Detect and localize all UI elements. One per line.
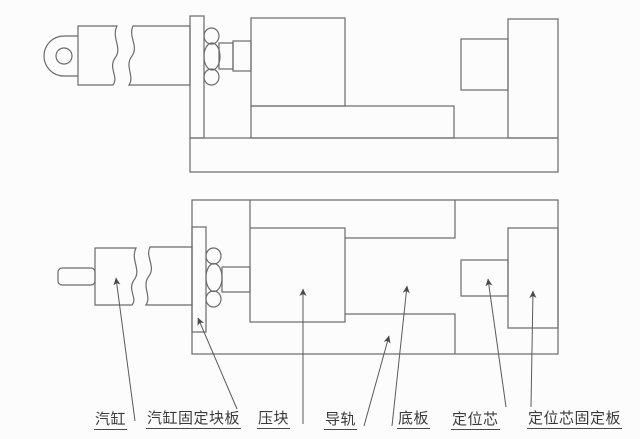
rod-nut-top-side — [204, 28, 219, 44]
press-block-plan — [250, 228, 345, 322]
base-plate-plan — [192, 200, 558, 354]
rod-nut-bottom-plan — [206, 291, 221, 307]
leader-base-plate — [392, 286, 407, 426]
rod-nut-mid-side — [204, 43, 220, 70]
assembly-drawing-canvas: 汽缸 汽缸固定块板 压块 导轨 底板 定位芯 定位芯固定板 — [0, 0, 640, 439]
cylinder-body-side — [78, 26, 118, 85]
cylinder-fixing-plate-side — [190, 16, 204, 138]
label-cylinder-fixing-block-plate: 汽缸固定块板 — [146, 410, 241, 429]
plan-view — [58, 200, 558, 354]
base-plate-side — [190, 138, 558, 172]
locating-core-fixing-plate-side — [508, 19, 558, 138]
label-press-block: 压块 — [257, 410, 290, 429]
rod-coupler-side — [233, 41, 251, 71]
piston-rod-side — [219, 43, 233, 69]
leader-lines — [116, 278, 533, 426]
leader-locating-core — [488, 279, 506, 407]
cylinder-fixing-plate-plan — [192, 227, 206, 332]
clevis-hole-side — [56, 48, 72, 64]
label-locating-core-fixing-plate: 定位芯固定板 — [527, 410, 622, 429]
cylinder-barrel-plan — [146, 247, 192, 305]
side-view — [44, 16, 558, 172]
label-locating-core: 定位芯 — [451, 411, 500, 430]
leader-cylinder — [116, 278, 135, 421]
cylinder-body-plan — [95, 248, 137, 305]
cylinder-rod-end-plan — [58, 268, 95, 285]
label-base-plate: 底板 — [397, 410, 430, 429]
guide-rail-side — [251, 106, 454, 138]
label-cylinder: 汽缸 — [94, 411, 127, 430]
guide-rail-upper-edge-plan — [345, 200, 455, 238]
leader-cylinder-fixing-plate — [198, 318, 237, 409]
locating-core-side — [461, 39, 508, 90]
leader-locating-core-fixing-plate — [531, 291, 533, 407]
rod-nut-top-plan — [206, 248, 221, 264]
assembly-drawing-svg — [0, 0, 640, 439]
label-guide-rail: 导轨 — [324, 411, 357, 430]
leader-guide-rail — [364, 336, 389, 426]
rod-coupler-plan — [222, 267, 250, 292]
rod-nut-bottom-side — [204, 69, 219, 85]
press-block-side — [251, 18, 345, 106]
cylinder-clevis-side — [44, 36, 78, 76]
cylinder-barrel-side — [129, 26, 190, 85]
rod-nut-mid-plan — [206, 264, 222, 292]
locating-core-plan — [461, 260, 508, 296]
